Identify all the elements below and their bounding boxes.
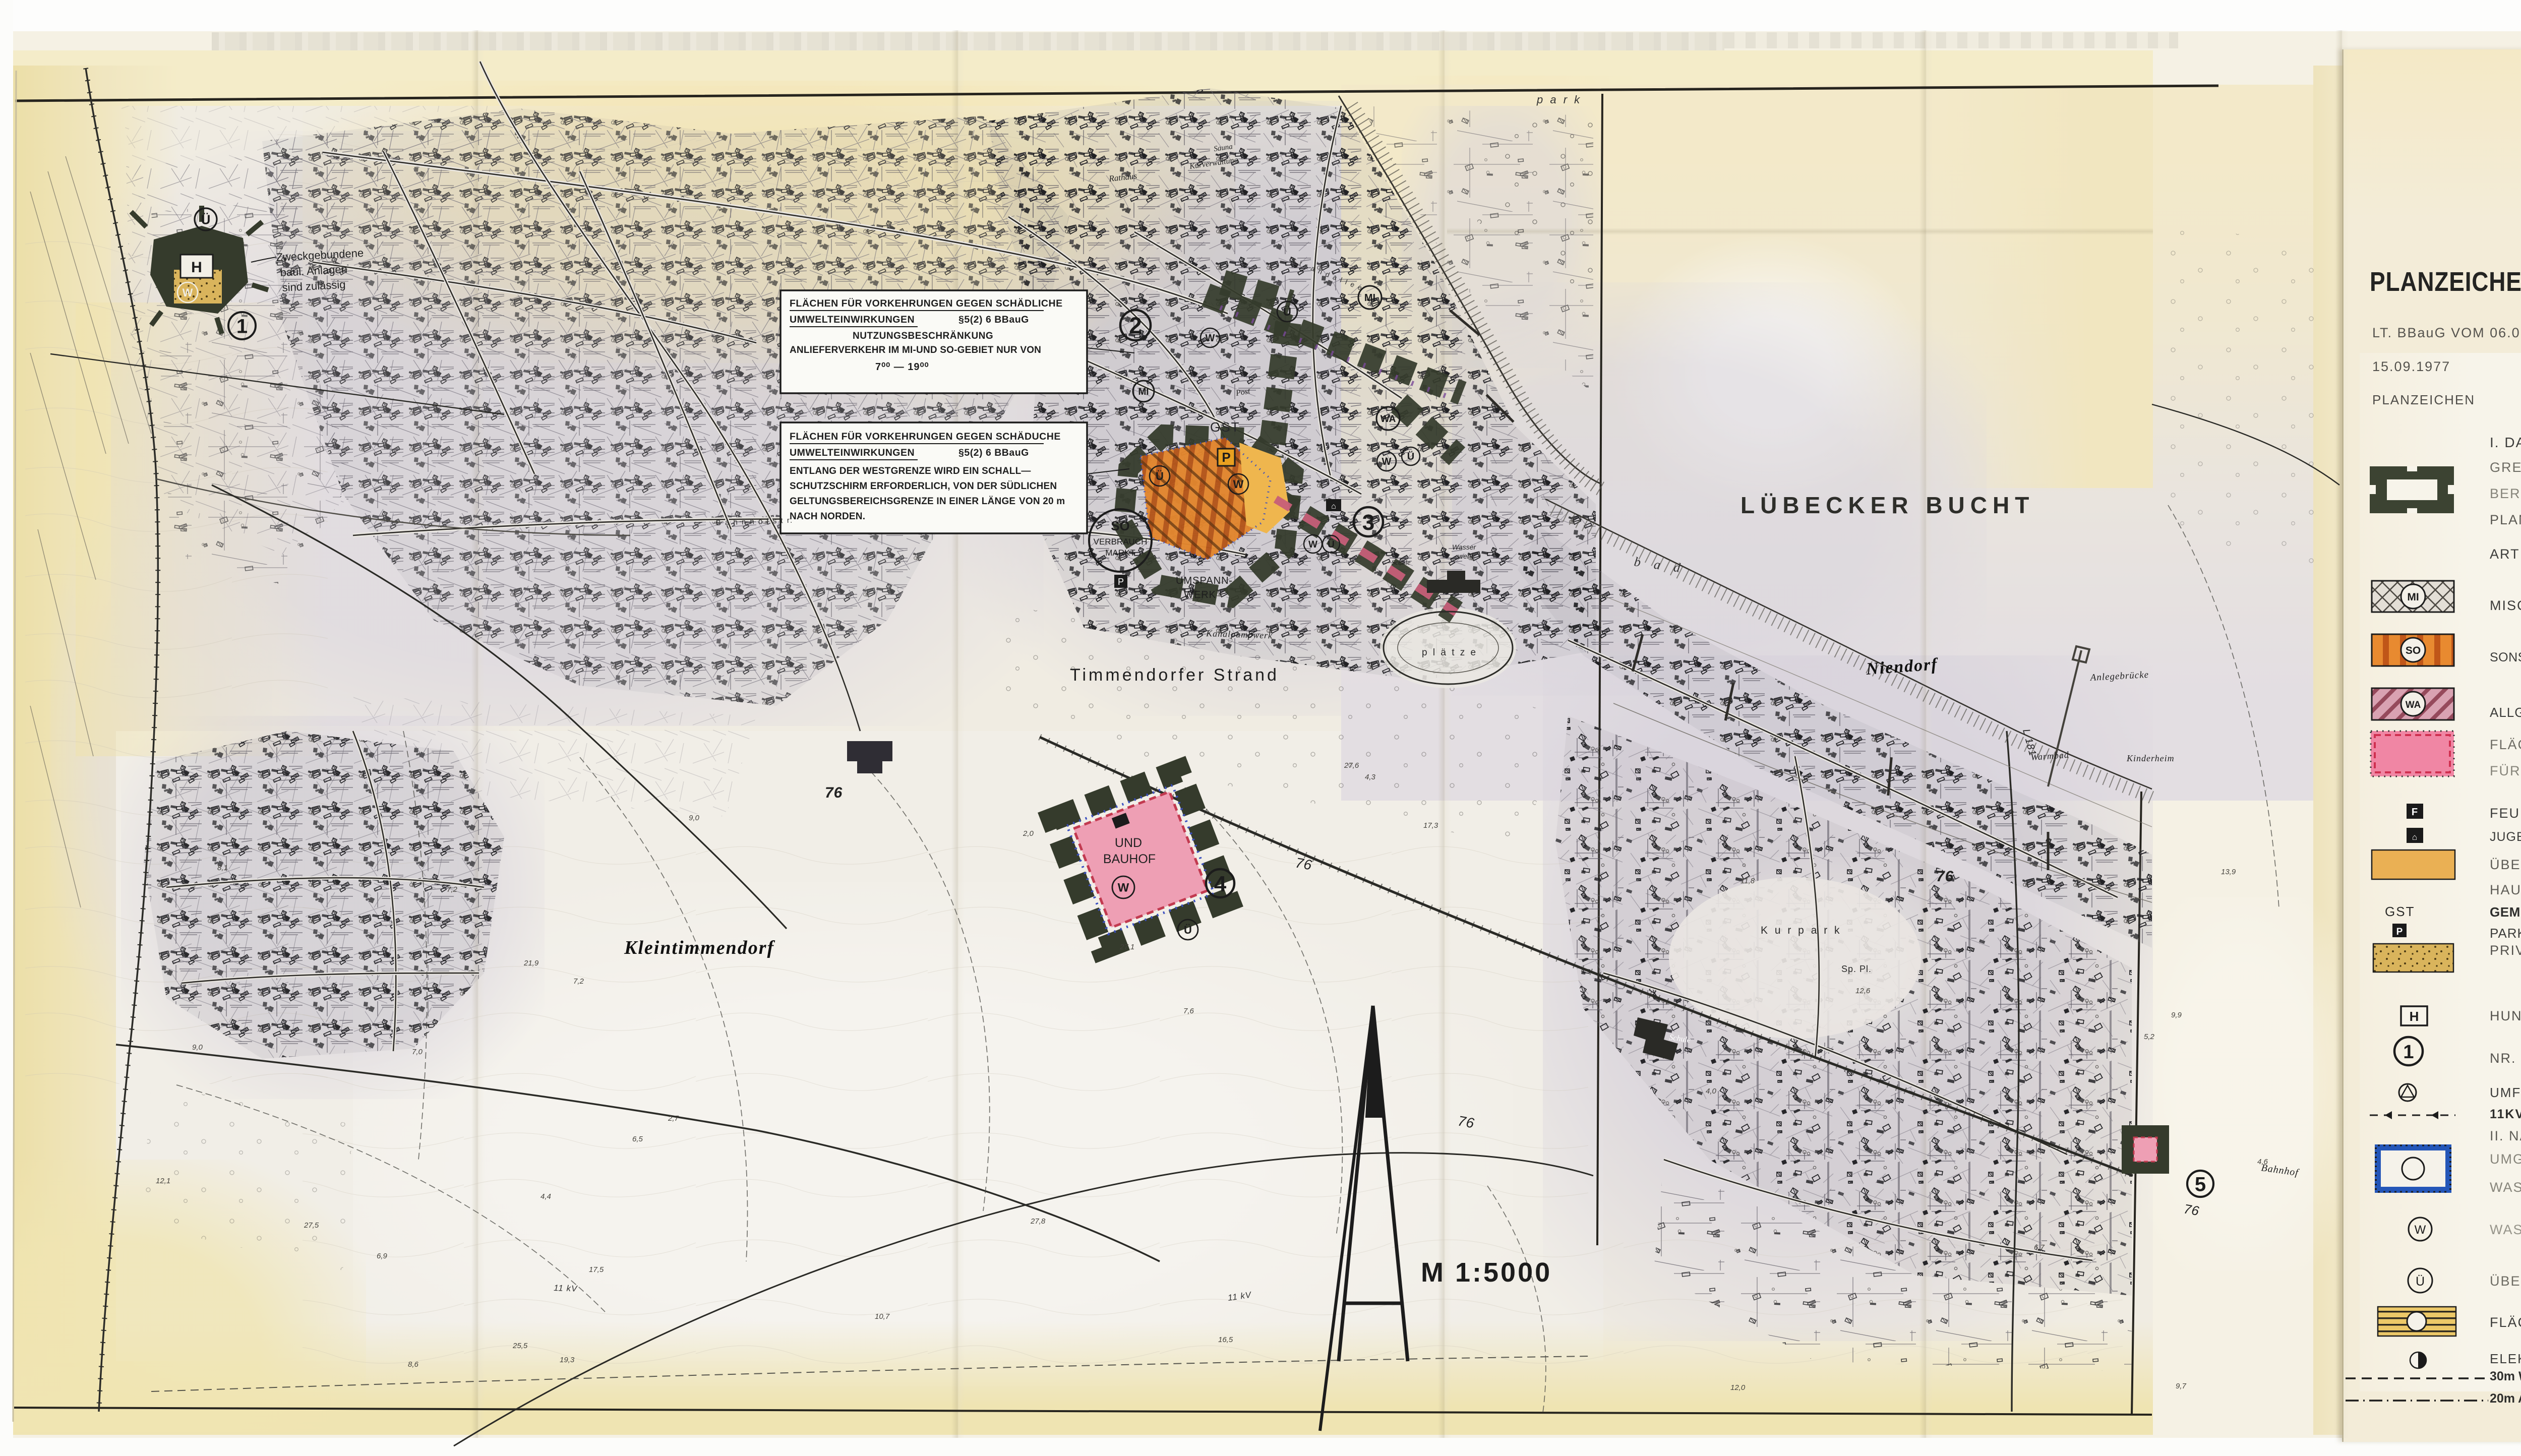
svg-text:W: W	[2415, 1223, 2426, 1237]
svg-text:F: F	[2412, 807, 2418, 818]
svg-text:MI: MI	[2407, 591, 2419, 603]
svg-text:1: 1	[2403, 1042, 2414, 1063]
svg-text:Ü: Ü	[2416, 1275, 2425, 1289]
svg-text:WA: WA	[2406, 700, 2421, 710]
svg-text:P: P	[2396, 927, 2403, 937]
svg-text:⌂: ⌂	[2412, 832, 2417, 842]
svg-text:H: H	[2410, 1009, 2419, 1024]
svg-text:GST: GST	[2385, 904, 2415, 919]
svg-text:SO: SO	[2406, 645, 2421, 656]
